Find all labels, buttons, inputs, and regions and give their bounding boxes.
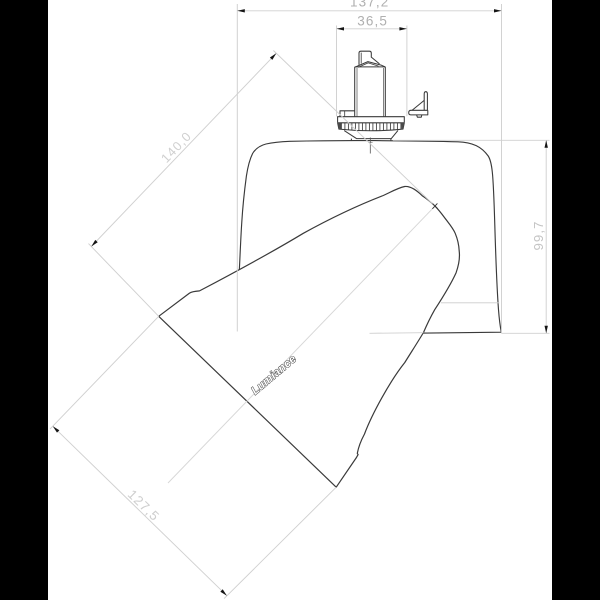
svg-text:36,5: 36,5: [357, 14, 388, 29]
svg-text:99,7: 99,7: [531, 220, 546, 250]
svg-text:137,2: 137,2: [350, 0, 389, 10]
